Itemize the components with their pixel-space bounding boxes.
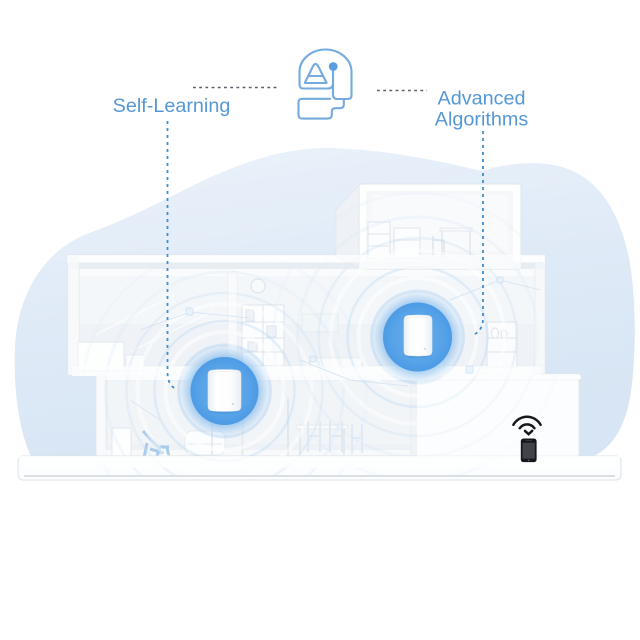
- svg-text:Advanced: Advanced: [438, 88, 526, 110]
- svg-text:Algorithms: Algorithms: [435, 109, 529, 131]
- svg-text:Self-Learning: Self-Learning: [113, 95, 231, 117]
